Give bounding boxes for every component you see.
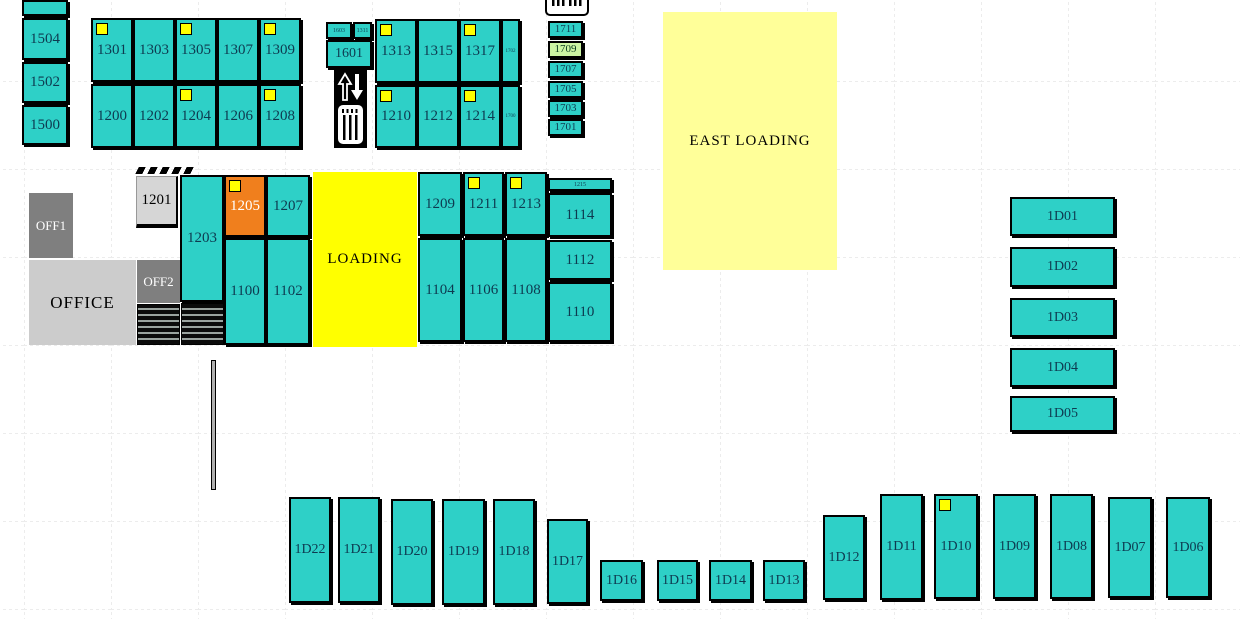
unit-label: 1204 [181, 109, 211, 124]
unit-label: OFFICE [50, 294, 115, 311]
unit-1303[interactable]: 1303 [133, 18, 175, 82]
office-off1: OFF1 [29, 193, 73, 258]
unit-label: 1112 [566, 253, 595, 268]
unit-label: 1210 [381, 109, 411, 124]
unit-1213[interactable]: 1213 [505, 172, 547, 236]
zone-loading: LOADING [313, 172, 417, 347]
unit-label: 1D09 [999, 540, 1030, 554]
alarm-indicator [180, 23, 192, 35]
unit-1201[interactable]: 1201 [136, 176, 178, 228]
alarm-indicator [468, 177, 480, 189]
office-off2: OFF2 [137, 260, 180, 303]
unit-1102[interactable]: 1102 [266, 238, 310, 345]
unit-1601[interactable]: 1601 [326, 40, 372, 68]
unit-label: 1702 [506, 49, 516, 54]
unit-label: 1305 [181, 43, 211, 58]
unit-label: 1311 [357, 28, 369, 34]
unit-label: 1D16 [606, 574, 637, 588]
unit-label: 1D04 [1047, 361, 1078, 375]
unit-1700[interactable]: 1700 [501, 85, 520, 148]
unit-label: 1212 [423, 109, 453, 124]
unit-1100[interactable]: 1100 [224, 238, 266, 345]
unit-label: 1D07 [1114, 541, 1145, 555]
unit-1200[interactable]: 1200 [91, 84, 133, 148]
unit-label: 1106 [469, 283, 498, 298]
unit-label: 1D17 [552, 555, 583, 569]
unit-label: 1D19 [448, 545, 479, 559]
unit-label: 1D22 [294, 543, 325, 557]
alarm-indicator [180, 89, 192, 101]
unit-1709[interactable]: 1709 [548, 41, 583, 58]
zone-east-loading: EAST LOADING [663, 12, 837, 270]
unit-label: OFF2 [143, 275, 173, 288]
unit-1214[interactable]: 1214 [459, 85, 501, 148]
unit-label: 1601 [335, 47, 363, 61]
unit-1d22[interactable]: 1D22 [289, 497, 331, 603]
unit-label: 1D02 [1047, 260, 1078, 274]
unit-1110[interactable]: 1110 [548, 282, 612, 342]
unit-1d12[interactable]: 1D12 [823, 515, 865, 600]
unit-1701[interactable]: 1701 [548, 119, 583, 136]
unit-1211[interactable]: 1211 [463, 172, 504, 236]
dock-ticks [135, 167, 195, 174]
facility-map: 1504150215001301130313051307130912001202… [0, 0, 1240, 619]
unit-label: 1202 [139, 109, 169, 124]
unit-1309[interactable]: 1309 [259, 18, 301, 82]
unit-label: 1D08 [1056, 540, 1087, 554]
unit-label: 1110 [566, 305, 595, 320]
stairs-hatch-left [137, 304, 180, 345]
unit-1705[interactable]: 1705 [548, 81, 583, 98]
unit-1d17[interactable]: 1D17 [547, 519, 588, 604]
unit-1317[interactable]: 1317 [459, 19, 501, 83]
unit-label: 1100 [230, 284, 259, 299]
unit-1209[interactable]: 1209 [418, 172, 462, 236]
unit-label: 1208 [265, 109, 295, 124]
unit-1d09[interactable]: 1D09 [993, 494, 1036, 599]
unit-1203[interactable]: 1203 [180, 175, 224, 302]
unit-label: 1317 [465, 44, 495, 59]
alarm-indicator [96, 23, 108, 35]
unit-1307[interactable]: 1307 [217, 18, 259, 82]
unit-label: 1205 [230, 199, 260, 214]
office-area: OFFICE [29, 260, 136, 345]
unit-label: 1D05 [1047, 407, 1078, 421]
unit-label: 1313 [381, 44, 411, 59]
unit-label: 1D21 [343, 543, 374, 557]
alarm-indicator [380, 24, 392, 36]
alarm-indicator [380, 90, 392, 102]
unit-label: 1214 [465, 109, 495, 124]
unit-1114[interactable]: 1114 [548, 193, 612, 237]
unit-1d02[interactable]: 1D02 [1010, 247, 1115, 287]
unit-label: 1701 [555, 122, 577, 133]
alarm-indicator [264, 23, 276, 35]
unit-label: 1303 [139, 43, 169, 58]
unit-1711[interactable]: 1711 [548, 21, 583, 38]
unit-1202[interactable]: 1202 [133, 84, 175, 148]
unit-1112[interactable]: 1112 [548, 240, 612, 280]
unit-1504[interactable]: 1504 [22, 18, 68, 60]
alarm-indicator [510, 177, 522, 189]
unit-1500[interactable]: 1500 [22, 105, 68, 145]
alarm-indicator [939, 499, 951, 511]
unit-label: 1213 [511, 197, 541, 212]
unit-label: 1707 [555, 64, 577, 75]
unit-label: 1D06 [1172, 541, 1203, 555]
unit-1210[interactable]: 1210 [375, 85, 417, 148]
unit-label: 1603 [333, 28, 345, 34]
unit-label: 1206 [223, 109, 253, 124]
unit-1d18[interactable]: 1D18 [493, 499, 535, 605]
unit-1603[interactable]: 1603 [326, 22, 352, 39]
unit-1d14[interactable]: 1D14 [709, 560, 752, 601]
unit-1205[interactable]: 1205 [224, 175, 266, 237]
unit-label: 1301 [97, 43, 127, 58]
unit-1d10[interactable]: 1D10 [934, 494, 978, 599]
unit-label: 1315 [423, 44, 453, 59]
alarm-indicator [464, 90, 476, 102]
unit-label: 1108 [511, 283, 540, 298]
unit-label: 1309 [265, 43, 295, 58]
unit-1d15[interactable]: 1D15 [657, 560, 698, 601]
unit-1707[interactable]: 1707 [548, 61, 583, 78]
unit-1702[interactable]: 1702 [501, 19, 520, 83]
unit-1d20[interactable]: 1D20 [391, 499, 433, 605]
unit-1d03[interactable]: 1D03 [1010, 298, 1115, 337]
unit-1703[interactable]: 1703 [548, 100, 583, 117]
unit-label: 1200 [97, 109, 127, 124]
unit-1208[interactable]: 1208 [259, 84, 301, 148]
alarm-indicator [229, 180, 241, 192]
unit-1d05[interactable]: 1D05 [1010, 396, 1115, 432]
unit-1502[interactable]: 1502 [22, 62, 68, 103]
unit-label: 1709 [555, 44, 577, 55]
unit-1d13[interactable]: 1D13 [763, 560, 805, 601]
unit-label: OFF1 [36, 219, 66, 232]
unit-1d07[interactable]: 1D07 [1108, 497, 1152, 598]
unit-label: 1D13 [768, 574, 799, 588]
unit-label: 1D14 [715, 574, 746, 588]
unit-label: 1104 [425, 283, 454, 298]
unit-1d11[interactable]: 1D11 [880, 494, 923, 600]
unit-label: 1705 [555, 84, 577, 95]
unit-label: 1700 [506, 114, 516, 119]
unit-label: 1711 [555, 24, 577, 35]
unit-label: 1D11 [886, 540, 917, 554]
unit-1d06[interactable]: 1D06 [1166, 497, 1210, 598]
barcode-icon [545, 0, 589, 16]
unit-label: 1504 [30, 32, 60, 47]
unit-1d21[interactable]: 1D21 [338, 497, 380, 603]
unit-label: 1D18 [498, 545, 529, 559]
unit-label: 1D10 [940, 540, 971, 554]
unit-label: 1D15 [662, 574, 693, 588]
unit-unlabeled-top[interactable] [22, 0, 68, 16]
unit-label: 1211 [469, 197, 498, 212]
unit-label: 1D01 [1047, 210, 1078, 224]
unit-1212[interactable]: 1212 [417, 85, 459, 148]
unit-label: 1201 [142, 193, 172, 208]
unit-1215[interactable]: 1215 [548, 178, 612, 191]
unit-1d01[interactable]: 1D01 [1010, 197, 1115, 236]
unit-label: 1D20 [396, 545, 427, 559]
unit-1108[interactable]: 1108 [505, 238, 547, 342]
unit-label: 1D03 [1047, 311, 1078, 325]
unit-label: EAST LOADING [689, 134, 810, 149]
unit-label: 1215 [574, 182, 586, 188]
unit-label: 1209 [425, 197, 455, 212]
unit-label: 1703 [555, 103, 577, 114]
unit-label: 1207 [273, 199, 303, 214]
unit-label: 1502 [30, 75, 60, 90]
unit-1204[interactable]: 1204 [175, 84, 217, 148]
unit-1313[interactable]: 1313 [375, 19, 417, 83]
unit-1d08[interactable]: 1D08 [1050, 494, 1093, 599]
unit-1207[interactable]: 1207 [266, 175, 310, 237]
unit-label: 1D12 [828, 551, 859, 565]
unit-label: LOADING [327, 252, 402, 267]
stairs-hatch-right [181, 303, 224, 345]
unit-label: 1307 [223, 43, 253, 58]
unit-1301[interactable]: 1301 [91, 18, 133, 82]
unit-1206[interactable]: 1206 [217, 84, 259, 148]
unit-1305[interactable]: 1305 [175, 18, 217, 82]
unit-1d19[interactable]: 1D19 [442, 499, 485, 605]
unit-label: 1203 [187, 231, 217, 246]
elevator-icon [334, 70, 367, 148]
unit-1311[interactable]: 1311 [353, 22, 372, 39]
unit-1315[interactable]: 1315 [417, 19, 459, 83]
unit-1106[interactable]: 1106 [463, 238, 504, 342]
wall-segment [211, 360, 216, 490]
alarm-indicator [464, 24, 476, 36]
unit-1104[interactable]: 1104 [418, 238, 462, 342]
unit-label: 1114 [566, 208, 595, 223]
unit-1d16[interactable]: 1D16 [600, 560, 643, 601]
unit-label: 1102 [273, 284, 302, 299]
unit-1d04[interactable]: 1D04 [1010, 348, 1115, 387]
unit-label: 1500 [30, 118, 60, 133]
alarm-indicator [264, 89, 276, 101]
